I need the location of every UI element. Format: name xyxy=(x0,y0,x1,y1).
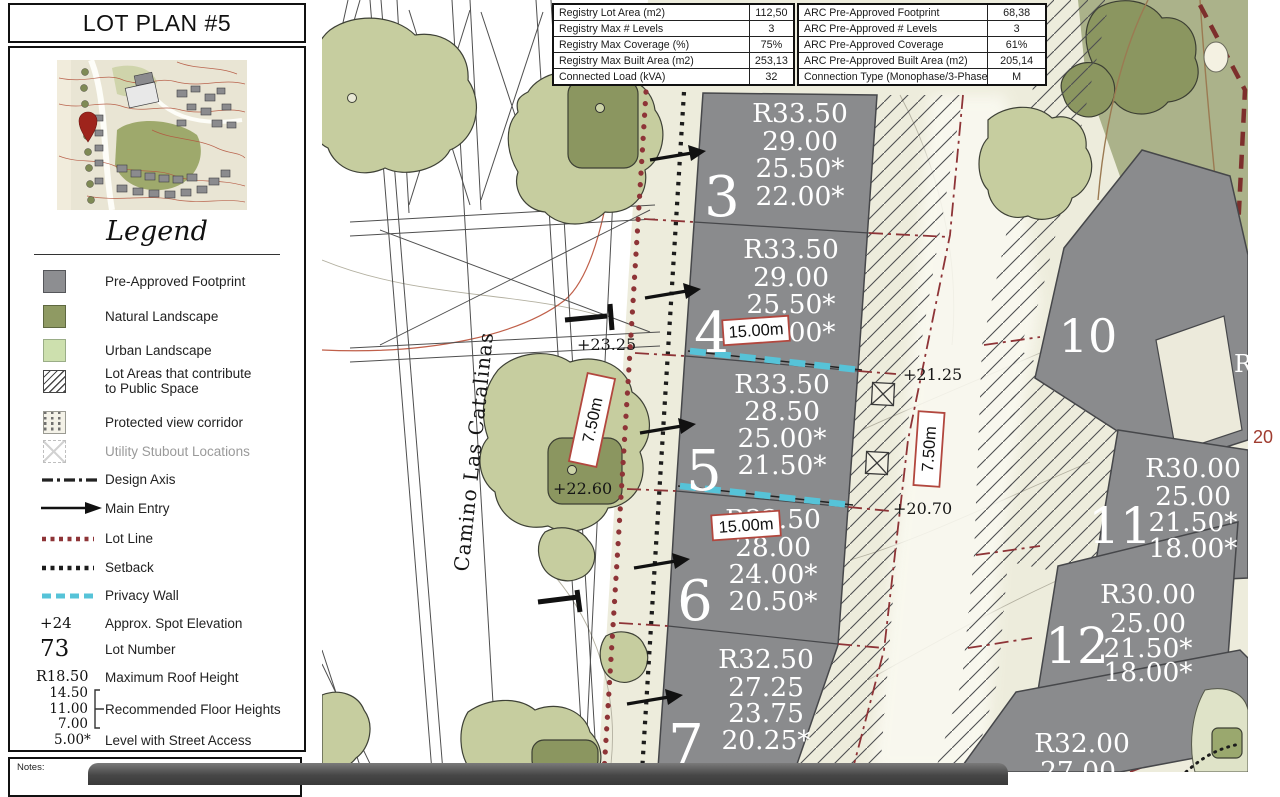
legend-item: Pre-Approved Footprint xyxy=(34,270,292,293)
table-cell-value: 205,14 xyxy=(987,53,1045,68)
legend-item: Design Axis xyxy=(34,472,292,487)
height-label: R33.50 xyxy=(752,98,848,129)
clearing xyxy=(1204,42,1228,72)
floor-height-symbol: 14.50 xyxy=(34,686,88,702)
adjacent-lot-number: 20 xyxy=(1253,427,1273,447)
legend-item-label: Approx. Spot Elevation xyxy=(105,616,242,631)
legend-item-label: Maximum Roof Height xyxy=(105,670,239,685)
table-cell-label: Connected Load (kVA) xyxy=(554,69,749,84)
dimension-value: 15.00m xyxy=(718,515,774,537)
lot-number: 5 xyxy=(686,439,722,504)
view-corridor-swatch xyxy=(43,411,66,434)
lot-number: 12 xyxy=(1045,617,1109,675)
dimension-value: 15.00m xyxy=(728,320,784,342)
lot-number: 6 xyxy=(677,569,713,634)
legend-item: Protected view corridor xyxy=(34,411,292,434)
main-entry-arrow-swatch xyxy=(40,500,102,516)
table-cell-label: Connection Type (Monophase/3-Phase) xyxy=(799,69,987,84)
overview-minimap xyxy=(57,60,247,210)
legend-item-label: Design Axis xyxy=(105,472,176,487)
legend-item: R18.50 Maximum Roof Height xyxy=(34,669,292,685)
setback-swatch xyxy=(42,563,94,573)
privacy-wall-swatch xyxy=(42,591,98,601)
table-cell-value: 3 xyxy=(749,21,793,36)
table-cell-value: 112,50 xyxy=(749,5,793,20)
table-cell-label: Registry Lot Area (m2) xyxy=(554,5,749,20)
table-cell-label: Registry Max # Levels xyxy=(554,21,749,36)
spot-elevation-symbol: +24 xyxy=(40,614,72,632)
legend-item-label: Utility Stubout Locations xyxy=(105,444,250,459)
floor-height-symbol: 11.00 xyxy=(34,702,88,718)
public-space-hatch-swatch xyxy=(43,370,66,393)
table-cell-value: 75% xyxy=(749,37,793,52)
table-cell-value: 3 xyxy=(987,21,1045,36)
natural-landscape-swatch xyxy=(43,305,66,328)
legend-item-label: Lot Areas that contribute to Public Spac… xyxy=(105,366,265,396)
legend-item: Privacy Wall xyxy=(34,588,292,603)
spot-elevation: +23.25 xyxy=(577,335,636,354)
street-access-symbol: 5.00* xyxy=(54,732,91,748)
page-title: LOT PLAN #5 xyxy=(8,3,306,43)
height-label: 20.50* xyxy=(728,586,817,617)
bottom-toolbar[interactable] xyxy=(88,763,1008,785)
legend-item-label: Urban Landscape xyxy=(105,343,212,358)
table-cell-value: M xyxy=(987,69,1045,84)
legend-item: Lot Areas that contribute to Public Spac… xyxy=(34,366,292,396)
height-label: R32.00 xyxy=(1034,728,1130,759)
legend-item-label: Protected view corridor xyxy=(105,415,243,430)
bracket-icon xyxy=(88,687,105,731)
footprint-swatch xyxy=(43,270,66,293)
table-cell-label: ARC Pre-Approved Footprint xyxy=(799,5,987,20)
roof-height-symbol: R18.50 xyxy=(36,669,88,685)
height-label: R33.50 xyxy=(743,234,839,265)
spot-elevation: +20.70 xyxy=(893,499,952,518)
table-cell-label: ARC Pre-Approved Built Area (m2) xyxy=(799,53,987,68)
lot-number: 10 xyxy=(1059,309,1118,363)
urban-landscape-swatch xyxy=(43,339,66,362)
legend-item: Urban Landscape xyxy=(34,339,292,362)
legend-item: 73 Lot Number xyxy=(34,636,292,662)
table-cell-label: Registry Max Coverage (%) xyxy=(554,37,749,52)
legend-item-label: Pre-Approved Footprint xyxy=(105,274,245,289)
legend-item-label: Lot Number xyxy=(105,642,176,657)
spot-elevation: +22.60 xyxy=(553,479,612,498)
height-label: 27.00 xyxy=(1040,756,1116,772)
table-cell-value: 32 xyxy=(749,69,793,84)
height-label: R30.00 xyxy=(1145,453,1241,484)
lot-number: 11 xyxy=(1088,497,1152,555)
dimension-value: 7.50m xyxy=(919,426,940,473)
lot-number-symbol: 73 xyxy=(40,636,69,662)
site-plan-map: 3 R33.50 29.00 25.50* 22.00* 4 R33.50 29… xyxy=(322,0,1280,772)
spot-elevation: +21.25 xyxy=(903,365,962,384)
utility-stubout-swatch xyxy=(43,440,66,463)
height-label: 22.00* xyxy=(755,181,844,212)
table-cell-value: 61% xyxy=(987,37,1045,52)
table-cell-label: ARC Pre-Approved # Levels xyxy=(799,21,987,36)
table-cell-label: ARC Pre-Approved Coverage xyxy=(799,37,987,52)
lot-line-swatch xyxy=(42,534,94,544)
lot-plan-page: { "window": { "title_box": "LOT PLAN #5"… xyxy=(0,0,1280,772)
table-cell-value: 68,38 xyxy=(987,5,1045,20)
legend-item-label: Level with Street Access xyxy=(105,733,251,748)
page-margin xyxy=(1248,0,1280,772)
height-label: 25.50* xyxy=(746,289,835,320)
design-axis-swatch xyxy=(42,475,100,485)
legend-item-label: Natural Landscape xyxy=(105,309,218,324)
floor-height-symbol: 7.00 xyxy=(34,717,88,733)
height-label: R30.00 xyxy=(1100,579,1196,610)
height-label: 25.50* xyxy=(755,153,844,184)
arc-data-table: ARC Pre-Approved Footprint68,38 ARC Pre-… xyxy=(797,3,1047,86)
lot-number: 3 xyxy=(704,165,740,230)
notes-label: Notes: xyxy=(17,762,44,773)
legend-item: Lot Line xyxy=(34,531,292,546)
legend-item: +24 Approx. Spot Elevation xyxy=(34,614,292,632)
legend-item: Utility Stubout Locations xyxy=(34,440,292,463)
legend-item-label: Recommended Floor Heights xyxy=(105,702,281,717)
legend-item-label: Main Entry xyxy=(105,501,170,516)
legend-heading: Legend xyxy=(10,216,304,247)
legend-item: Setback xyxy=(34,560,292,575)
planter xyxy=(1212,728,1242,758)
legend-panel: Legend Pre-Approved Footprint Natural La… xyxy=(8,46,306,752)
legend-item: 14.50 11.00 7.00 Recommended Floor Heigh… xyxy=(34,686,292,733)
table-cell-label: Registry Max Built Area (m2) xyxy=(554,53,749,68)
height-label: 18.00* xyxy=(1148,533,1237,564)
height-label: 18.00* xyxy=(1103,657,1192,688)
legend-item: 5.00* Level with Street Access xyxy=(34,732,292,748)
legend-item-label: Setback xyxy=(105,560,154,575)
height-label: 20.25* xyxy=(721,725,810,756)
legend-item: Natural Landscape xyxy=(34,305,292,328)
registry-data-table: Registry Lot Area (m2)112,50 Registry Ma… xyxy=(552,3,795,86)
height-label: R32.50 xyxy=(718,644,814,675)
height-label: 21.50* xyxy=(737,450,826,481)
legend-item-label: Privacy Wall xyxy=(105,588,179,603)
table-cell-value: 253,13 xyxy=(749,53,793,68)
legend-item-label: Lot Line xyxy=(105,531,153,546)
legend-item: Main Entry xyxy=(34,500,292,516)
divider xyxy=(34,254,280,255)
